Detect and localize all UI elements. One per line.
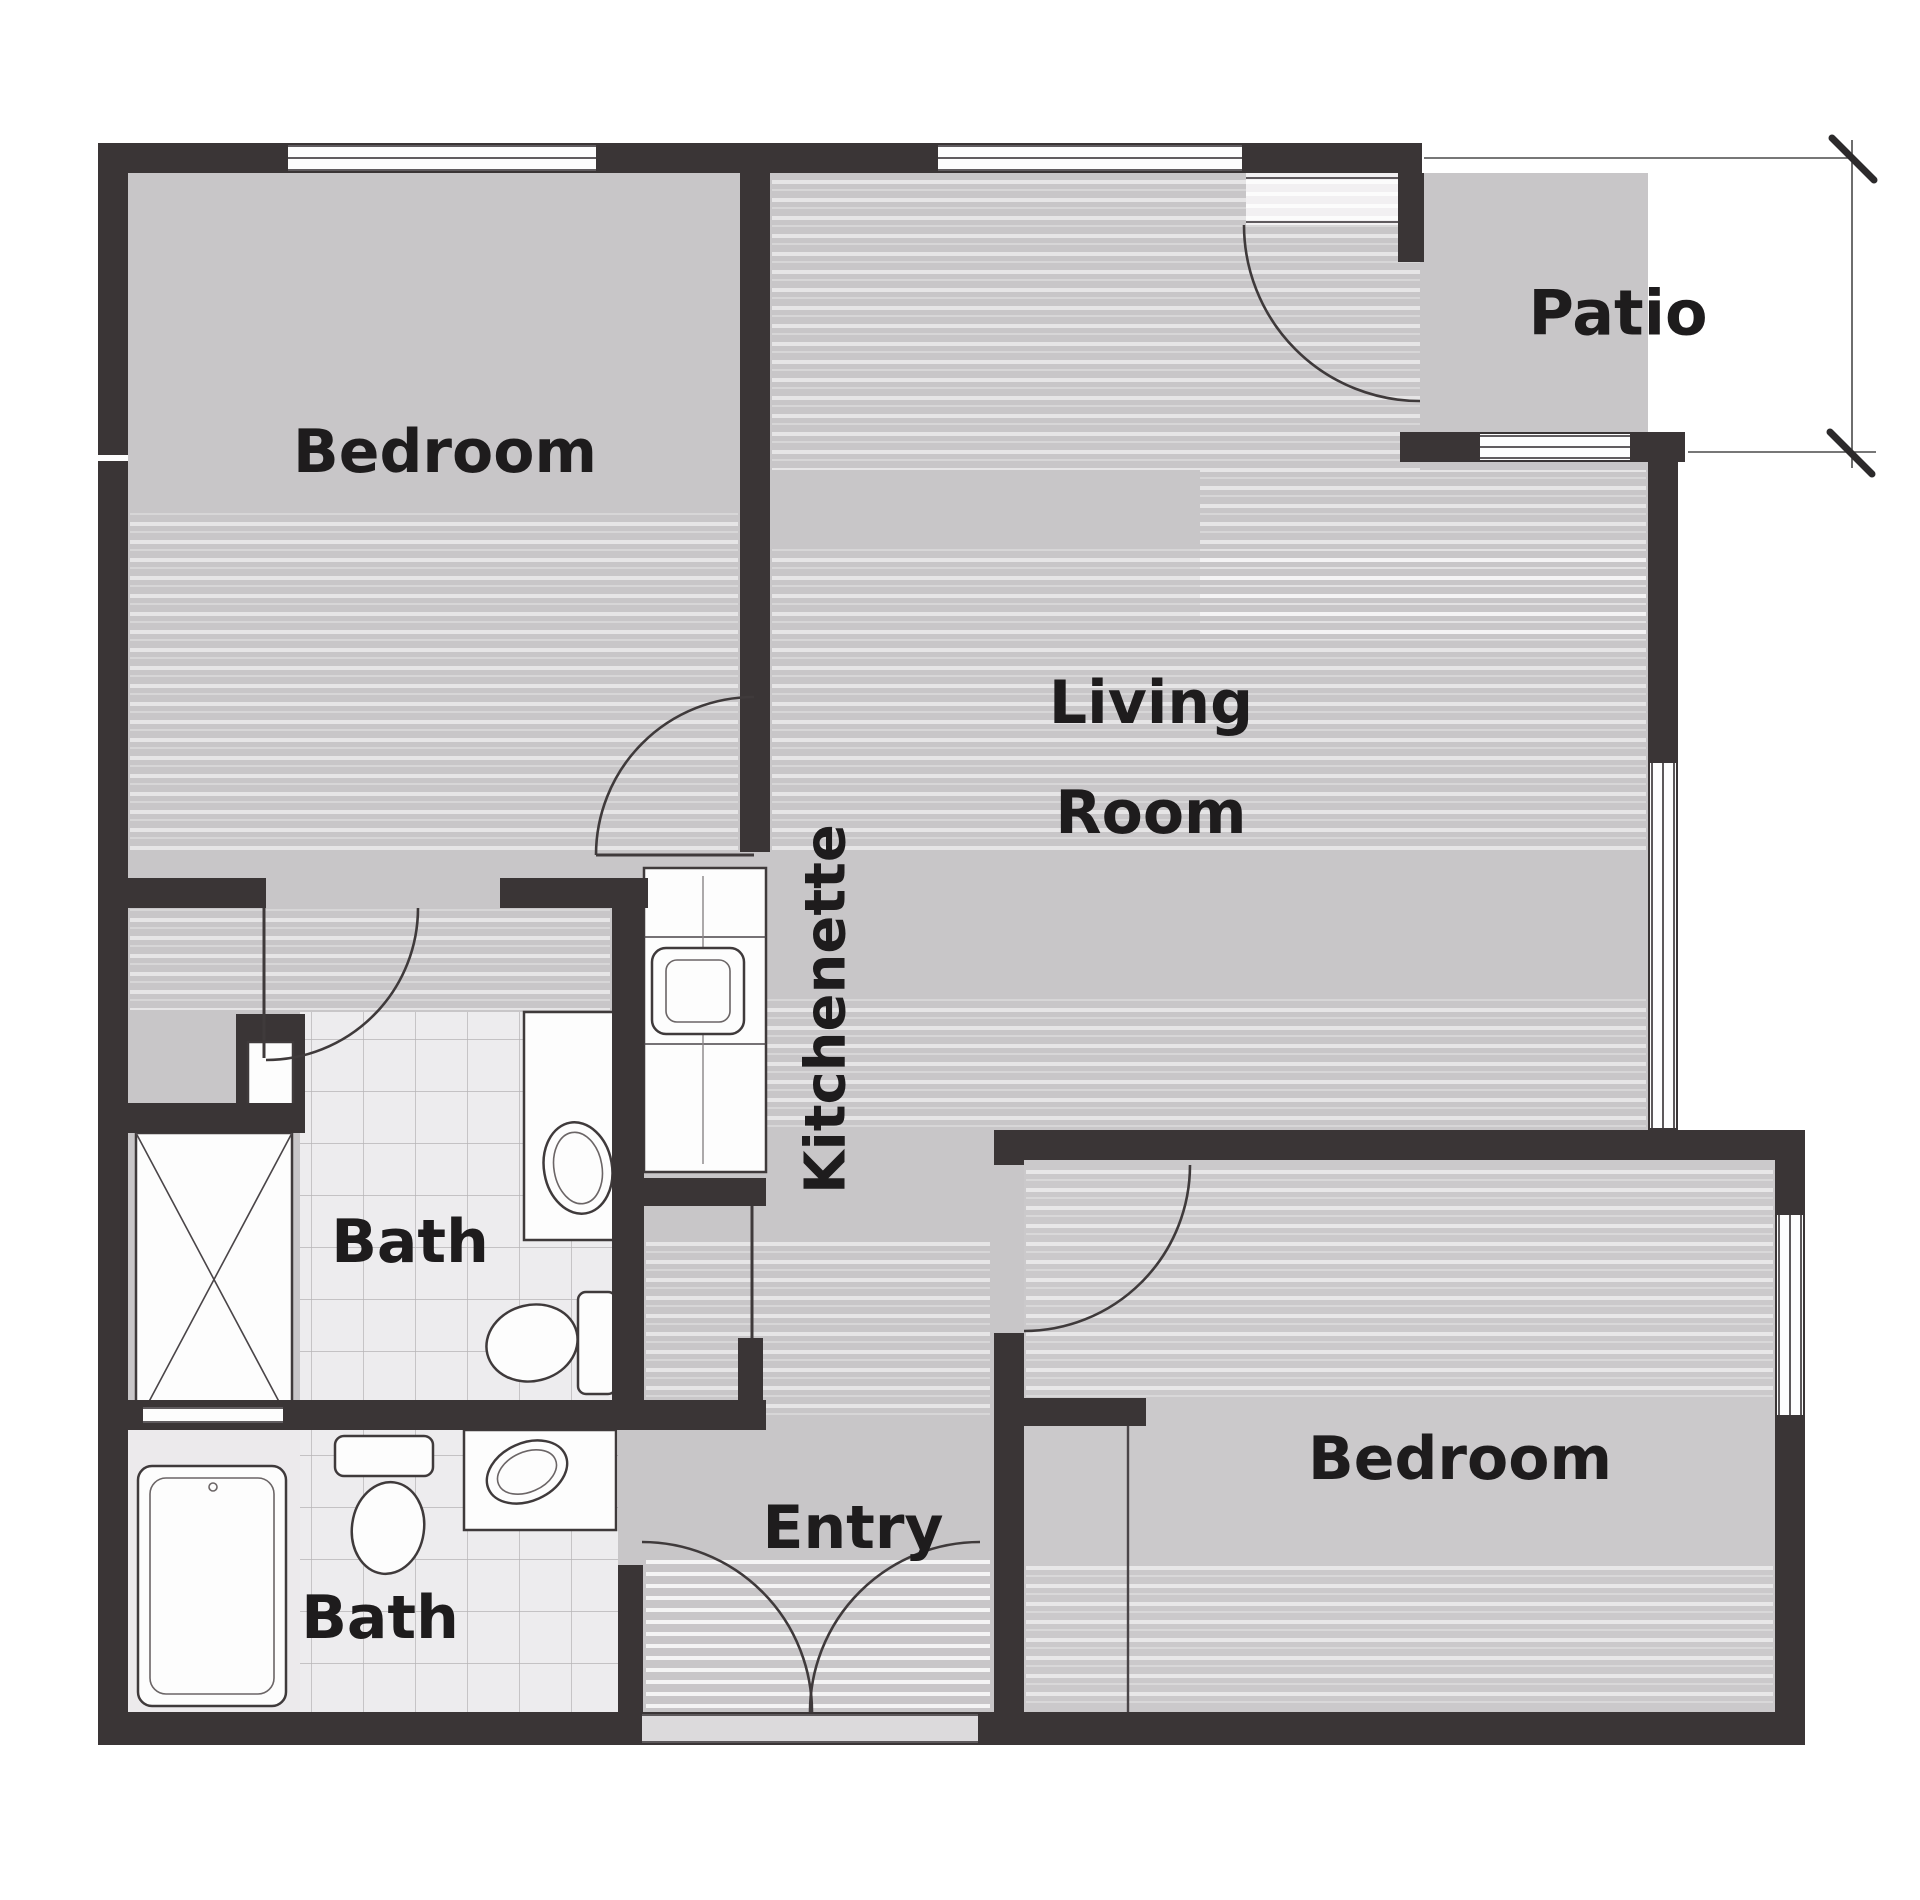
floor-plan-drawing: Bedroom Living Room Patio Kitchenette Ba… — [0, 0, 1920, 1900]
shower — [136, 1133, 292, 1426]
bathtub — [138, 1466, 286, 1706]
label-patio: Patio — [1528, 277, 1707, 350]
texture-band — [646, 1240, 990, 1420]
bedroom-br-closet-stub — [1013, 1398, 1146, 1426]
dimension-tick-bottom — [1830, 432, 1872, 474]
front-door-opening — [642, 1714, 978, 1743]
texture-band — [130, 510, 738, 852]
label-bath-lower: Bath — [301, 1583, 459, 1653]
wall-left — [98, 143, 128, 1745]
label-kitchenette: Kitchenette — [794, 824, 859, 1194]
window-living-top — [938, 145, 1242, 171]
toilet-tank — [335, 1436, 433, 1476]
texture-band — [1026, 1163, 1773, 1400]
bedroom-br-top-wall — [994, 1130, 1805, 1160]
window-living-right — [1650, 763, 1676, 1128]
kitchenette-south-stub — [612, 1178, 766, 1206]
texture-band — [1026, 1560, 1773, 1710]
label-bedroom-top-left: Bedroom — [293, 417, 597, 487]
floor-plan: Bedroom Living Room Patio Kitchenette Ba… — [0, 0, 1920, 1900]
bath-divider-opening — [143, 1407, 283, 1423]
sink-lower-bath — [464, 1428, 616, 1530]
patio-sliding-door — [1246, 173, 1398, 225]
closet-niche — [248, 1042, 293, 1106]
hall-stub-west — [128, 878, 266, 908]
patio-door-jamb — [1398, 173, 1424, 262]
label-living-line2: Room — [1055, 778, 1246, 848]
tub-outer — [138, 1466, 286, 1706]
window-bedroom-tl-top — [288, 145, 596, 171]
wall-joint-notch — [98, 455, 128, 461]
window-bedroom-br-right — [1777, 1215, 1803, 1415]
bedroom-br-left-wall-lower — [994, 1333, 1024, 1745]
toilet-tank — [578, 1292, 616, 1394]
kitchen-counter — [644, 868, 766, 1172]
bath-upper-closet-wall — [98, 1103, 305, 1133]
sink-upper-bath — [524, 1012, 619, 1240]
entry-wall-piece — [738, 1338, 763, 1400]
kitchenette-left-wall — [612, 878, 644, 1430]
bedroom-br-left-wall-upper — [994, 1130, 1024, 1165]
texture-band — [130, 908, 610, 1010]
texture-band — [646, 1560, 990, 1710]
bedroom-tl-living-wall — [740, 173, 770, 852]
window-patio-wall — [1480, 434, 1630, 460]
bath-lower-right-wall — [618, 1565, 643, 1712]
label-living-line1: Living — [1049, 668, 1253, 738]
label-entry: Entry — [762, 1493, 943, 1563]
label-bath-upper: Bath — [331, 1207, 489, 1277]
dimension-tick-top — [1832, 138, 1874, 180]
label-bedroom-bottom-right: Bedroom — [1308, 1424, 1612, 1494]
